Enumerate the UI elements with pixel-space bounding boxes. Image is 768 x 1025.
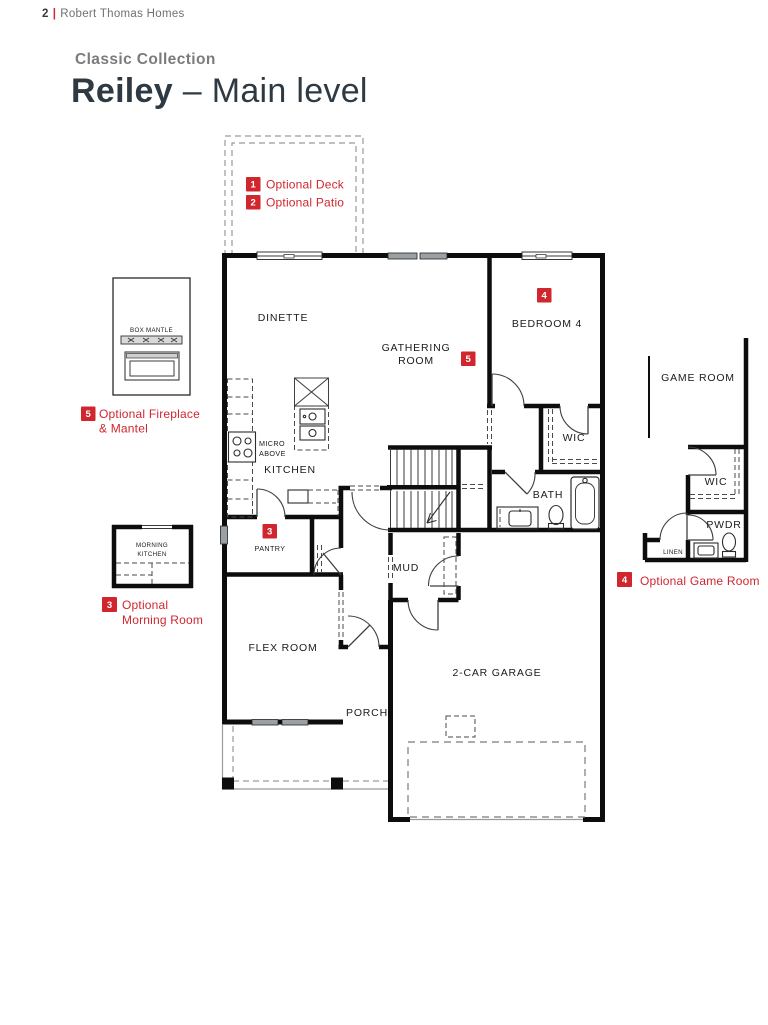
badge-bedroom-4: 4 <box>537 288 552 303</box>
basement-door <box>352 492 390 530</box>
mud-garage-door <box>408 600 438 630</box>
pantry-door <box>257 489 285 517</box>
exterior-walls <box>222 253 605 822</box>
optional-deck-label: Optional Deck <box>266 178 345 192</box>
bath-label: BATH <box>533 489 563 501</box>
window <box>420 253 447 259</box>
mud-label: MUD <box>393 562 419 574</box>
wic-label: WIC <box>563 432 586 444</box>
game-wic-door <box>688 447 716 475</box>
svg-text:3: 3 <box>107 600 112 611</box>
porch-post <box>222 778 234 790</box>
garage-features <box>408 716 585 817</box>
optional-fireplace-label-2: & Mantel <box>99 422 148 436</box>
window <box>388 253 417 259</box>
window <box>282 720 308 726</box>
svg-text:5: 5 <box>86 409 92 420</box>
svg-text:3: 3 <box>267 527 272 538</box>
floor-plan: BOX MANTLE MORNING KITCHEN <box>0 0 768 1025</box>
sliding-door <box>257 252 322 260</box>
badge-optional-deck: 1 Optional Deck <box>246 177 345 192</box>
closet-door <box>314 548 341 575</box>
micro-label-1: MICRO <box>259 439 285 448</box>
kitchen-label: KITCHEN <box>264 464 316 476</box>
svg-text:1: 1 <box>251 180 257 191</box>
dinette-label: DINETTE <box>258 312 309 324</box>
gathering-label-1: GATHERING <box>382 342 451 354</box>
morning-kitchen-inset: MORNING KITCHEN <box>112 525 193 588</box>
morning-kitchen-label-1: MORNING <box>136 542 168 549</box>
pantry-label: PANTRY <box>255 544 286 553</box>
svg-text:2: 2 <box>251 198 256 209</box>
game-room-label: GAME ROOM <box>661 372 735 384</box>
micro-label-2: ABOVE <box>259 449 286 458</box>
bedroom4-door <box>492 374 524 406</box>
wic-door <box>560 406 588 434</box>
optional-morning-label-1: Optional <box>122 598 168 612</box>
optional-patio-label: Optional Patio <box>266 196 344 210</box>
linen-door <box>660 513 687 540</box>
badge-pantry-3: 3 <box>263 524 278 539</box>
porch-post <box>331 778 343 790</box>
flex-label: FLEX ROOM <box>248 642 317 654</box>
badge-optional-game-room: 4 Optional Game Room <box>617 572 760 588</box>
badge-optional-fireplace: 5 Optional Fireplace & Mantel <box>81 407 200 436</box>
svg-text:4: 4 <box>622 575 628 586</box>
bathtub <box>571 477 599 529</box>
optional-fireplace-label-1: Optional Fireplace <box>99 407 200 421</box>
pwdr-label: PWDR <box>706 519 741 531</box>
kitchen-island <box>295 378 329 450</box>
gathering-label-2: ROOM <box>398 355 434 367</box>
window <box>252 720 278 726</box>
bath-fixtures <box>497 409 600 529</box>
linen-label: LINEN <box>663 549 683 556</box>
garage-apron <box>408 742 585 817</box>
window <box>221 526 228 544</box>
porch-slab <box>222 725 390 790</box>
badge-optional-patio: 2 Optional Patio <box>246 195 344 210</box>
base-cabinet <box>288 490 338 516</box>
optional-game-room-label: Optional Game Room <box>640 574 760 588</box>
stairs <box>387 448 459 528</box>
svg-text:5: 5 <box>466 354 472 365</box>
bath-door <box>505 472 535 494</box>
game-wic-shelves <box>690 449 739 499</box>
porch-label: PORCH <box>346 707 388 719</box>
vanity-sink <box>497 507 538 529</box>
game-wic-label: WIC <box>705 476 728 488</box>
optional-morning-label-2: Morning Room <box>122 613 203 627</box>
garage-label: 2-CAR GARAGE <box>453 667 542 679</box>
fireplace-inset: BOX MANTLE <box>113 278 190 395</box>
badge-optional-morning-room: 3 Optional Morning Room <box>102 597 203 627</box>
morning-kitchen-label-2: KITCHEN <box>137 551 166 558</box>
toilet <box>549 506 564 530</box>
stair-handrail <box>387 485 459 490</box>
badge-gathering-5: 5 <box>461 352 476 367</box>
pwdr-toilet <box>723 533 736 557</box>
bedroom-window <box>522 252 572 260</box>
pwdr-sink <box>694 543 718 558</box>
range <box>229 432 256 462</box>
svg-text:4: 4 <box>542 291 548 302</box>
bedroom4-label: BEDROOM 4 <box>512 318 582 330</box>
box-mantle-label: BOX MANTLE <box>130 327 173 334</box>
furnace <box>446 716 475 737</box>
front-door <box>348 616 379 647</box>
